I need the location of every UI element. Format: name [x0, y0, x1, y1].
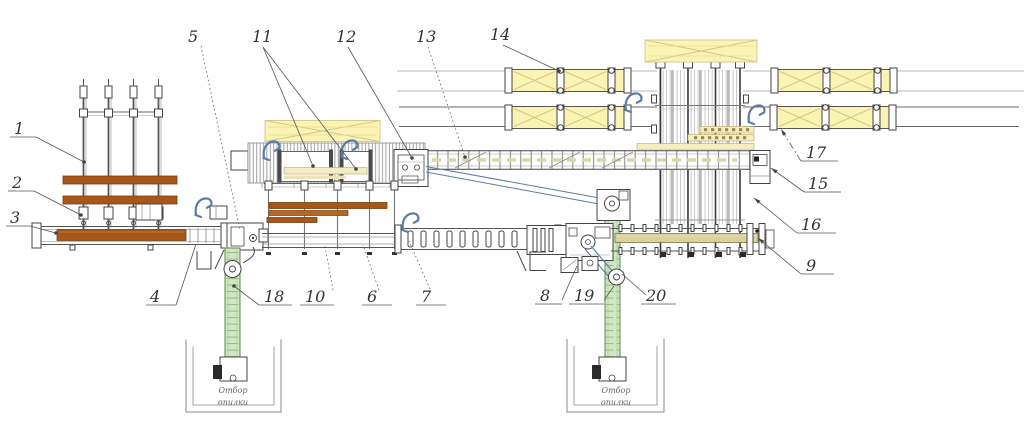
callout-3-label: 3 — [10, 208, 20, 227]
callout-18-dot — [232, 284, 236, 288]
saw-pulley — [581, 235, 595, 249]
log-beam — [63, 176, 177, 184]
saw-machine — [517, 224, 614, 278]
callout-9-label: 9 — [806, 256, 816, 275]
log-beam — [63, 196, 177, 204]
callout-20-leader — [622, 274, 646, 295]
callout-1-leader — [36, 137, 84, 162]
sorted-board — [267, 218, 317, 223]
callout-20-label: 20 — [645, 286, 666, 305]
callout-6-leader — [363, 245, 379, 290]
callout-9-leader — [758, 238, 801, 274]
stack-trolley — [771, 68, 897, 94]
layout-scene: Отбор опилки — [0, 0, 1024, 422]
conveyor-drive-unit-15 — [750, 151, 770, 184]
pit-label-line2: опилки — [218, 398, 248, 407]
callout-13-leader — [428, 47, 465, 157]
cant-hook-icon — [196, 198, 212, 217]
sorted-board — [269, 211, 348, 216]
callout-14-label: 14 — [490, 25, 510, 44]
callout-1-label: 1 — [14, 119, 24, 138]
callout-4-leader — [176, 244, 196, 305]
elevator-drive-drum — [224, 261, 241, 278]
callout-15-arrow — [771, 168, 778, 174]
elevator-motor — [592, 365, 601, 379]
callout-18-label: 18 — [264, 287, 284, 306]
log-deck — [60, 79, 182, 231]
stack-trolley — [505, 68, 631, 94]
callout-5-label: 5 — [188, 27, 198, 46]
callout-17-label: 17 — [806, 143, 827, 162]
sorting-table — [262, 181, 399, 255]
callout-11-label: 11 — [252, 27, 272, 46]
callout-10-leader — [325, 246, 333, 290]
callout-2-dot — [79, 213, 83, 217]
sorted-board — [269, 203, 387, 209]
stack-trolley — [770, 105, 896, 131]
belt-drive-lines — [426, 167, 607, 206]
callout-10-label: 10 — [305, 287, 325, 306]
callout-13-dot — [463, 155, 467, 159]
waste-elevator-1: Отбор опилки — [186, 248, 281, 412]
callout-1-dot — [82, 160, 86, 164]
saw-motor — [582, 257, 598, 271]
pit-label-line1: Отбор — [602, 386, 631, 395]
callout-7-leader — [409, 241, 430, 289]
callout-13-label: 13 — [416, 27, 436, 46]
callout-7-label: 7 — [421, 287, 432, 306]
callout-11-dot — [311, 164, 315, 168]
callout-19-label: 19 — [574, 286, 594, 305]
callout-14-dot — [557, 69, 561, 73]
layout-drawing: Отбор опилки — [0, 0, 1024, 422]
callout-11-dot — [354, 167, 358, 171]
pit-label-line2: опилки — [601, 398, 631, 407]
log-deck-carriages — [79, 204, 163, 225]
callout-6-label: 6 — [367, 287, 377, 306]
chute-icon — [197, 250, 224, 269]
callout-12-label: 12 — [336, 27, 356, 46]
infeed-log-conveyor — [32, 223, 231, 250]
callout-15-label: 15 — [808, 174, 828, 193]
machine-drive-unit-12 — [394, 150, 428, 187]
pit-label-line1: Отбор — [219, 386, 248, 395]
outfeed-conveyor — [611, 224, 774, 258]
cant-hook-icon — [403, 213, 419, 232]
callout-16-label: 16 — [801, 215, 821, 234]
lumber-stack-top — [645, 40, 757, 62]
callout-8-label: 8 — [540, 286, 550, 305]
callout-17-arrow — [781, 129, 786, 136]
callout-12-dot — [410, 156, 414, 160]
callout-14-leader — [503, 45, 559, 71]
callout-3-dot — [54, 231, 58, 235]
cant-hook-icon — [749, 105, 765, 124]
lumber-stack-infeed — [265, 121, 380, 142]
elevator-drive-drum — [609, 269, 625, 285]
callout-4-label: 4 — [149, 287, 160, 306]
callout-2-label: 2 — [11, 173, 22, 192]
stack-trolley — [505, 105, 631, 131]
callout-5-leader — [201, 46, 240, 230]
log-on-conveyor — [57, 230, 186, 241]
board-on-outfeed — [615, 234, 758, 243]
elevator-motor — [213, 365, 222, 379]
